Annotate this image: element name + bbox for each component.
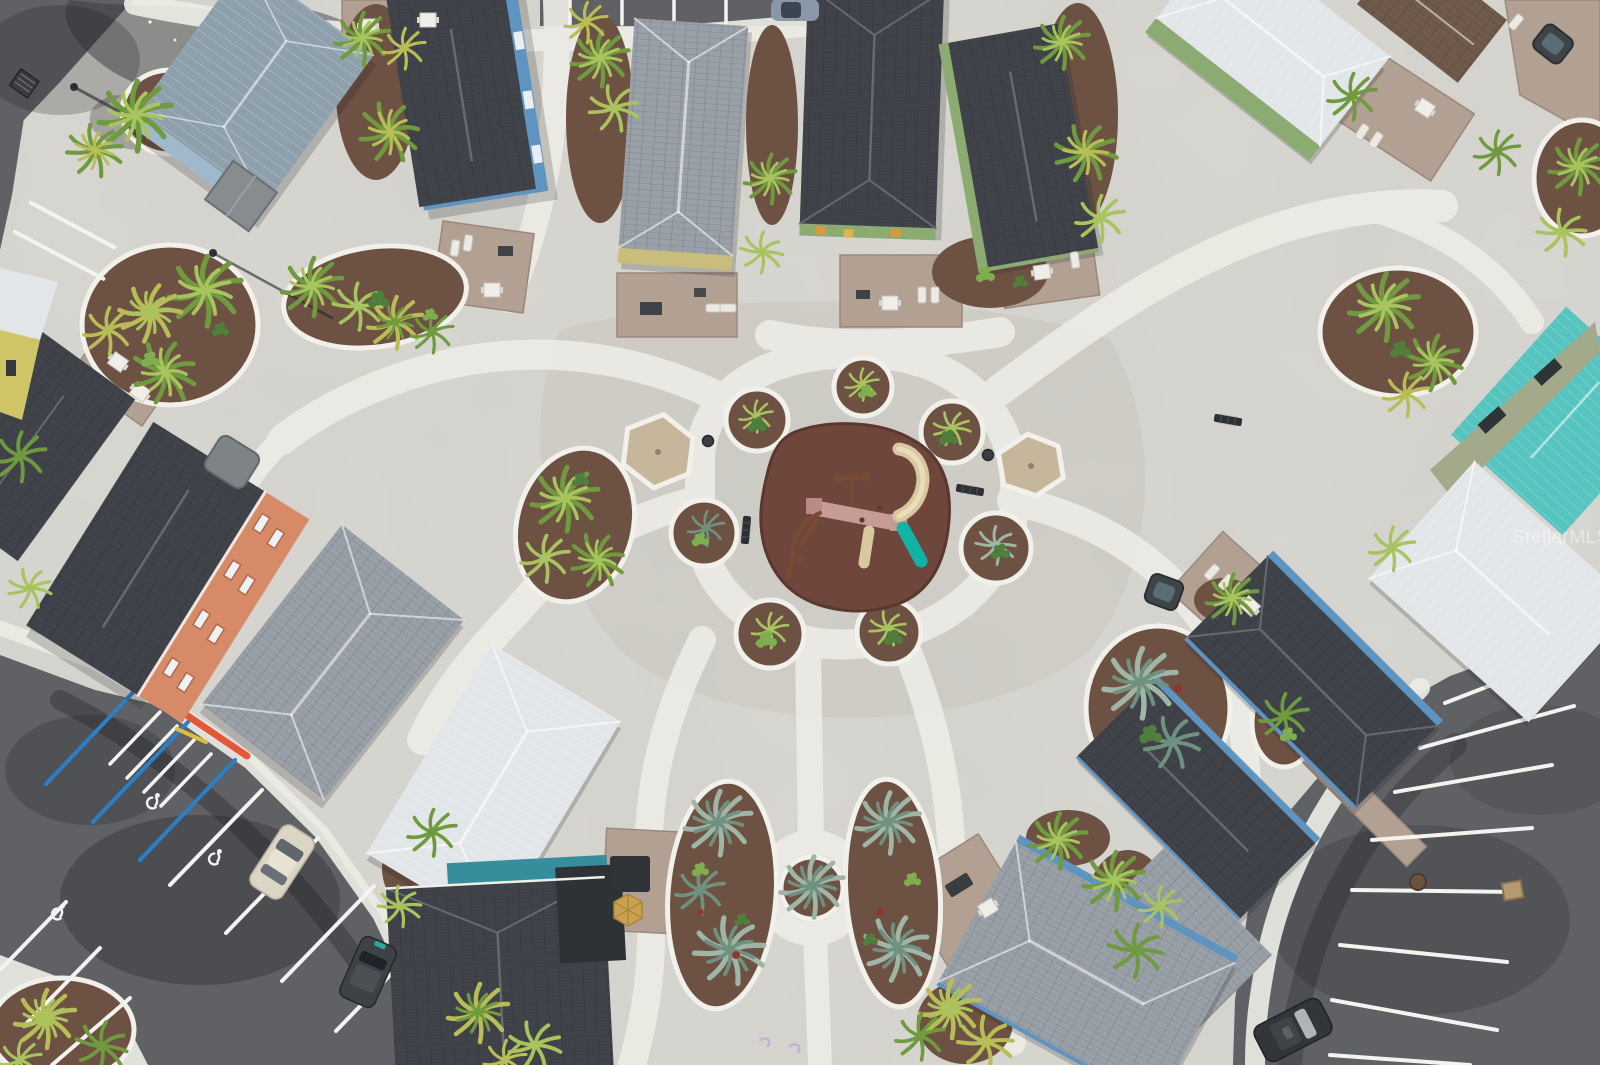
grill <box>498 246 513 256</box>
red-plant <box>732 951 740 959</box>
bar-post <box>851 479 852 503</box>
lounger <box>1070 252 1080 269</box>
lounger <box>720 304 736 312</box>
straight-slide <box>864 531 869 563</box>
sand-drain <box>655 449 661 455</box>
lounger <box>450 240 460 257</box>
aerial-photo-canvas: StellarMLS <box>0 0 1600 1065</box>
picnic-table <box>417 13 439 27</box>
shutter <box>890 229 900 237</box>
cottage-s-teal <box>385 854 632 1065</box>
climber-post <box>786 571 792 577</box>
cottage-n-gray <box>617 18 752 277</box>
lounger <box>463 235 473 252</box>
trash-can <box>703 436 714 447</box>
car-top-edge <box>771 0 819 21</box>
aerial-photo: StellarMLS <box>0 0 1600 1065</box>
window <box>6 360 16 376</box>
shutter <box>843 229 853 237</box>
grill <box>856 290 870 299</box>
planting-circle <box>671 500 737 566</box>
climber-post <box>798 556 804 562</box>
picnic-table <box>879 296 901 310</box>
pergola <box>610 856 650 892</box>
sand-drain <box>1028 463 1034 469</box>
shutter <box>815 226 825 234</box>
cottage-n-green <box>799 0 950 241</box>
manhole-cover <box>1410 874 1426 890</box>
red-plant <box>697 909 704 916</box>
picnic-table <box>481 283 503 297</box>
red-plant <box>876 908 884 916</box>
red-plant <box>1174 684 1183 693</box>
gold-umbrella <box>614 894 642 926</box>
stall-line <box>1352 890 1517 892</box>
watermark: StellarMLS <box>1512 527 1600 548</box>
lounger <box>931 287 939 303</box>
storm-drain <box>1502 880 1524 900</box>
bar-end <box>862 473 870 481</box>
post <box>877 505 882 510</box>
post <box>859 517 864 522</box>
bar-end <box>834 475 842 483</box>
grill <box>640 302 662 315</box>
grill <box>694 288 706 297</box>
trash-can <box>983 450 994 461</box>
lounger <box>918 287 926 303</box>
